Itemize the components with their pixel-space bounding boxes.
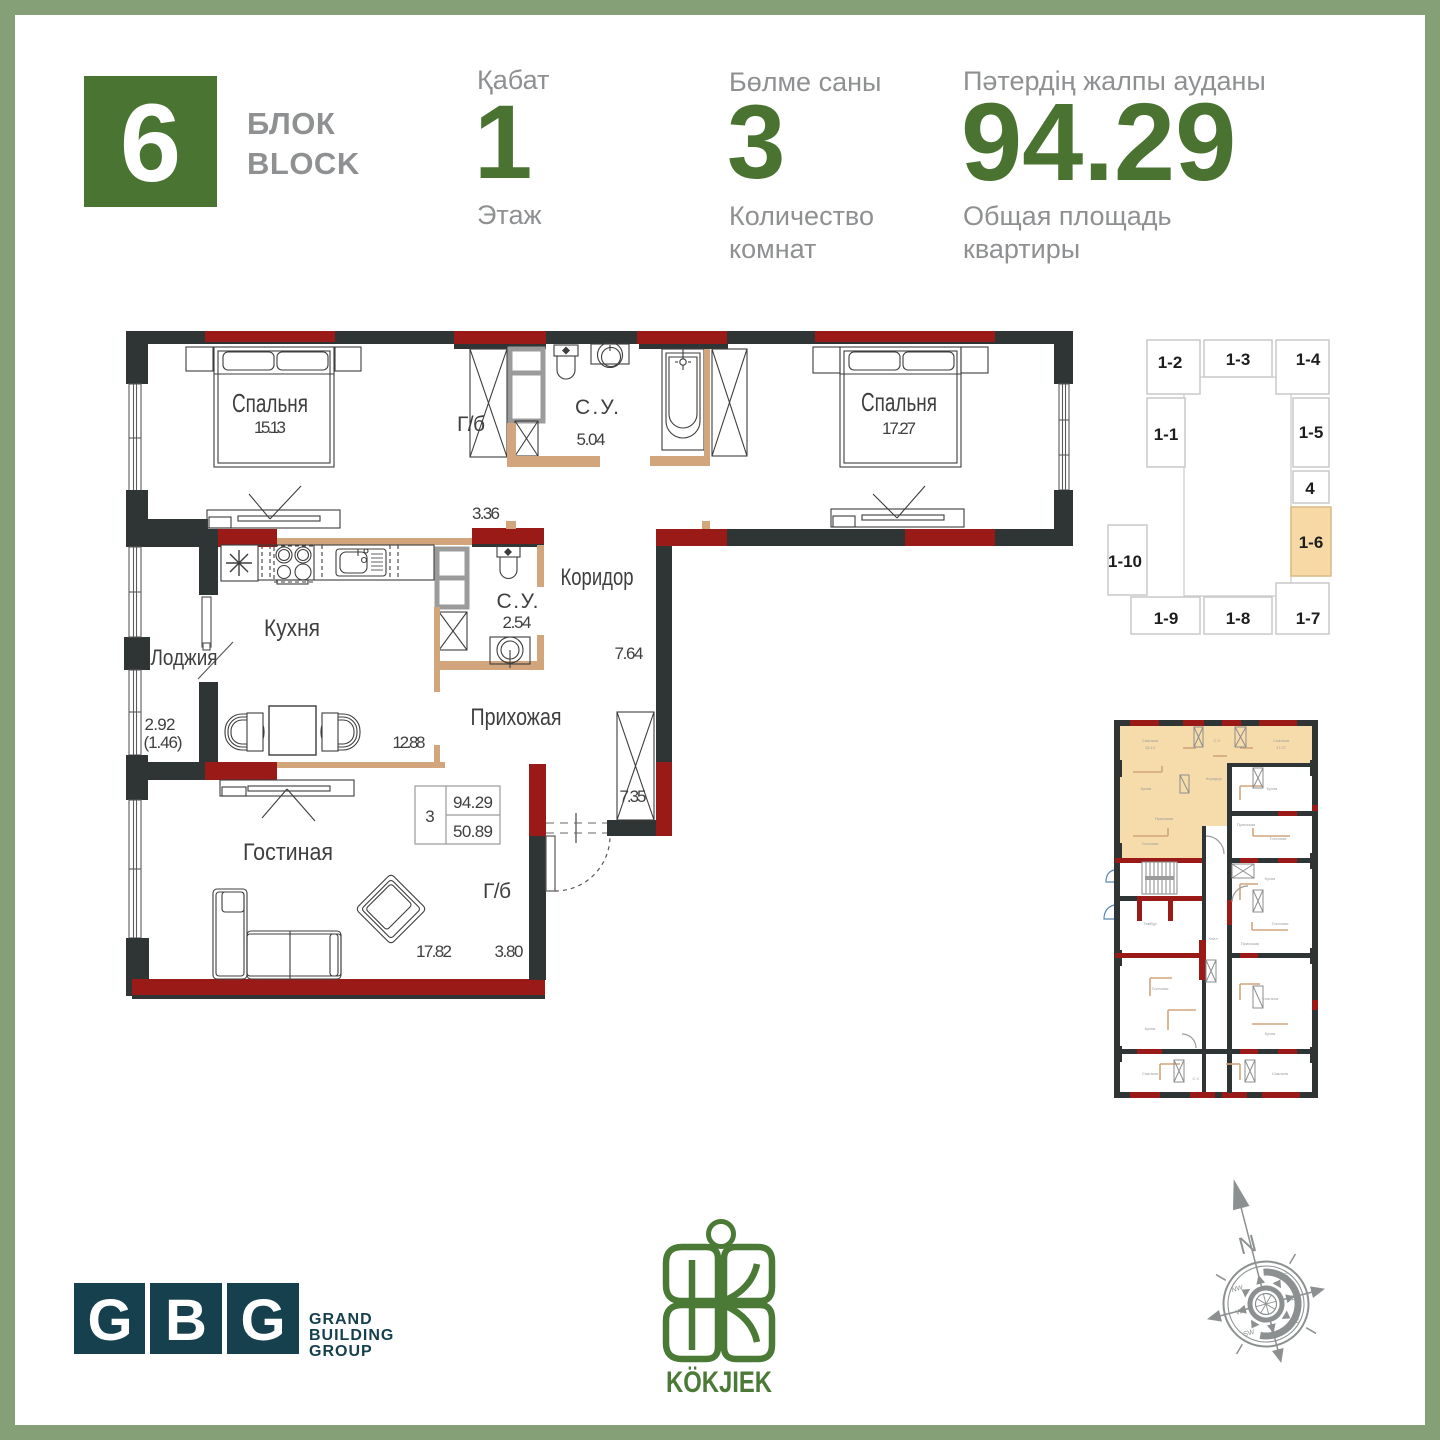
svg-text:Спальня: Спальня — [1273, 738, 1289, 743]
svg-text:50.89: 50.89 — [453, 822, 493, 841]
svg-text:3.80: 3.80 — [495, 942, 524, 961]
svg-text:15.13: 15.13 — [1145, 745, 1156, 750]
svg-text:(1.46): (1.46) — [144, 733, 183, 752]
svg-text:N: N — [1236, 1230, 1260, 1260]
svg-text:Тамбур: Тамбур — [1143, 921, 1157, 926]
svg-text:Холл: Холл — [1208, 936, 1218, 941]
svg-text:1-3: 1-3 — [1226, 350, 1251, 369]
svg-text:С.У.: С.У. — [1213, 738, 1220, 743]
svg-text:17.82: 17.82 — [416, 942, 452, 961]
svg-text:G: G — [87, 1288, 132, 1353]
svg-text:SE: SE — [1290, 1317, 1301, 1326]
svg-text:1-9: 1-9 — [1154, 609, 1179, 628]
svg-text:1-4: 1-4 — [1296, 350, 1321, 369]
svg-text:Лоджия: Лоджия — [151, 645, 218, 670]
svg-text:BUILDING: BUILDING — [309, 1327, 394, 1344]
svg-text:Кухня: Кухня — [264, 615, 320, 642]
svg-text:Кухня: Кухня — [1265, 1031, 1276, 1036]
svg-text:1-8: 1-8 — [1226, 609, 1251, 628]
svg-text:Гостиная: Гостиная — [243, 839, 333, 866]
svg-text:2.54: 2.54 — [503, 613, 532, 632]
svg-text:Прихожая: Прихожая — [1155, 816, 1174, 821]
svg-text:1-7: 1-7 — [1296, 609, 1321, 628]
svg-text:Гостиная: Гостиная — [1152, 986, 1169, 991]
svg-text:С.У.: С.У. — [1192, 1076, 1199, 1081]
svg-text:3.36: 3.36 — [472, 504, 500, 523]
svg-text:B: B — [165, 1288, 207, 1353]
svg-text:Г/б: Г/б — [457, 413, 485, 436]
svg-text:Кухня: Кухня — [1267, 786, 1278, 791]
svg-text:17.27: 17.27 — [882, 419, 916, 438]
svg-text:Прихожая: Прихожая — [1237, 822, 1256, 827]
svg-text:Спальня: Спальня — [1272, 1071, 1288, 1076]
svg-text:Спальня: Спальня — [1262, 996, 1278, 1001]
svg-text:Г/б: Г/б — [483, 880, 511, 903]
svg-text:С.У.: С.У. — [497, 590, 540, 613]
svg-text:1-1: 1-1 — [1154, 425, 1179, 444]
svg-text:94.29: 94.29 — [453, 793, 493, 812]
svg-text:KÖKJIEK: KÖKJIEK — [666, 1366, 772, 1399]
svg-text:4: 4 — [1305, 479, 1315, 498]
svg-text:5.04: 5.04 — [577, 430, 606, 449]
svg-text:7.35: 7.35 — [620, 787, 647, 806]
svg-text:Прихожая: Прихожая — [471, 704, 562, 731]
svg-text:12.88: 12.88 — [393, 733, 426, 752]
svg-text:Кухня: Кухня — [1145, 1026, 1156, 1031]
svg-text:1-6: 1-6 — [1299, 533, 1324, 552]
svg-text:3: 3 — [425, 807, 434, 826]
svg-text:Спальня: Спальня — [861, 387, 937, 417]
svg-text:Коридор: Коридор — [1206, 776, 1223, 781]
svg-text:SW: SW — [1243, 1329, 1256, 1339]
svg-text:N: N — [1257, 1277, 1264, 1285]
svg-text:Кухня: Кухня — [1265, 876, 1276, 881]
svg-text:Спальня: Спальня — [1142, 738, 1158, 743]
svg-text:Спальня: Спальня — [232, 388, 308, 418]
svg-text:15.13: 15.13 — [254, 418, 286, 437]
svg-text:1-2: 1-2 — [1158, 353, 1183, 372]
svg-text:Гостиная: Гостиная — [1142, 841, 1159, 846]
svg-text:Гостиная: Гостиная — [1270, 836, 1287, 841]
svg-text:Кухня: Кухня — [1141, 786, 1152, 791]
svg-text:GROUP: GROUP — [309, 1343, 373, 1360]
svg-text:Спальня: Спальня — [1142, 1071, 1158, 1076]
svg-text:Гостиная: Гостиная — [1272, 921, 1289, 926]
svg-text:G: G — [240, 1288, 285, 1353]
svg-text:С.У.: С.У. — [575, 396, 621, 419]
svg-text:GRAND: GRAND — [309, 1311, 373, 1328]
svg-text:2.92: 2.92 — [145, 715, 176, 734]
svg-text:Прихожая: Прихожая — [1241, 941, 1260, 946]
svg-text:1-5: 1-5 — [1299, 423, 1324, 442]
svg-text:Коридор: Коридор — [561, 564, 634, 591]
svg-text:1-10: 1-10 — [1108, 552, 1142, 571]
svg-text:7.64: 7.64 — [615, 644, 644, 663]
svg-text:17.27: 17.27 — [1276, 745, 1287, 750]
